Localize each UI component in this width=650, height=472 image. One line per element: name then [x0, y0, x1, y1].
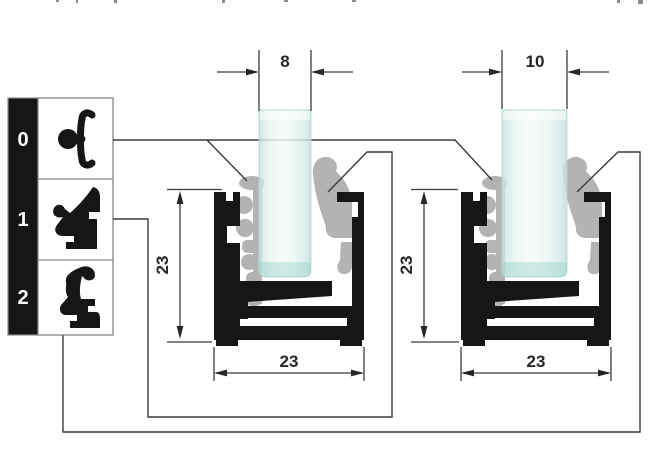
left-glass-pane [259, 110, 311, 277]
right-profile-height-dimension: 23 [397, 190, 459, 343]
diagram-canvas: 0 1 2 [0, 0, 650, 472]
left-profile-width-dimension: 23 [214, 347, 364, 381]
left-profile-height-dimension: 23 [153, 190, 222, 343]
right-glass-width-label: 10 [526, 52, 545, 71]
arrowhead-up-icon [421, 191, 428, 204]
arrowhead-right-icon [489, 69, 502, 76]
right-glass-pane [502, 110, 567, 277]
right-profile-wedge-gasket [563, 157, 602, 274]
arrowhead-right-icon [598, 370, 611, 377]
legend-row-1-number: 1 [17, 209, 28, 231]
left-glass-width-label: 8 [280, 52, 289, 71]
arrowhead-up-icon [177, 191, 184, 204]
arrowhead-down-icon [177, 326, 184, 339]
arrowhead-right-icon [351, 370, 364, 377]
right-profile-width-label: 23 [527, 352, 546, 371]
cropped-text-remnants [56, 0, 643, 4]
arrowhead-left-icon [311, 69, 324, 76]
right-profile-width-dimension: 23 [461, 347, 611, 381]
left-glass-width-dimension: 8 [217, 50, 353, 111]
right-glass-width-dimension: 10 [462, 50, 609, 109]
legend-row-2-number: 2 [17, 287, 28, 309]
gasket-legend-table: 0 1 2 [8, 98, 113, 335]
legend-row-0-number: 0 [17, 129, 28, 151]
right-profile-height-label: 23 [397, 256, 416, 275]
glass-profile-technical-drawing: 0 1 2 [0, 0, 650, 472]
right-glass-bottom-edge [502, 262, 567, 277]
arrowhead-right-icon [246, 69, 259, 76]
left-glass-bottom-edge [259, 262, 311, 277]
arrowhead-left-icon [461, 370, 474, 377]
left-profile-wedge-gasket [313, 157, 352, 274]
arrowhead-down-icon [421, 326, 428, 339]
arrowhead-left-icon [567, 69, 580, 76]
arrowhead-left-icon [214, 370, 227, 377]
left-profile-width-label: 23 [280, 352, 299, 371]
left-profile-height-label: 23 [153, 256, 172, 275]
